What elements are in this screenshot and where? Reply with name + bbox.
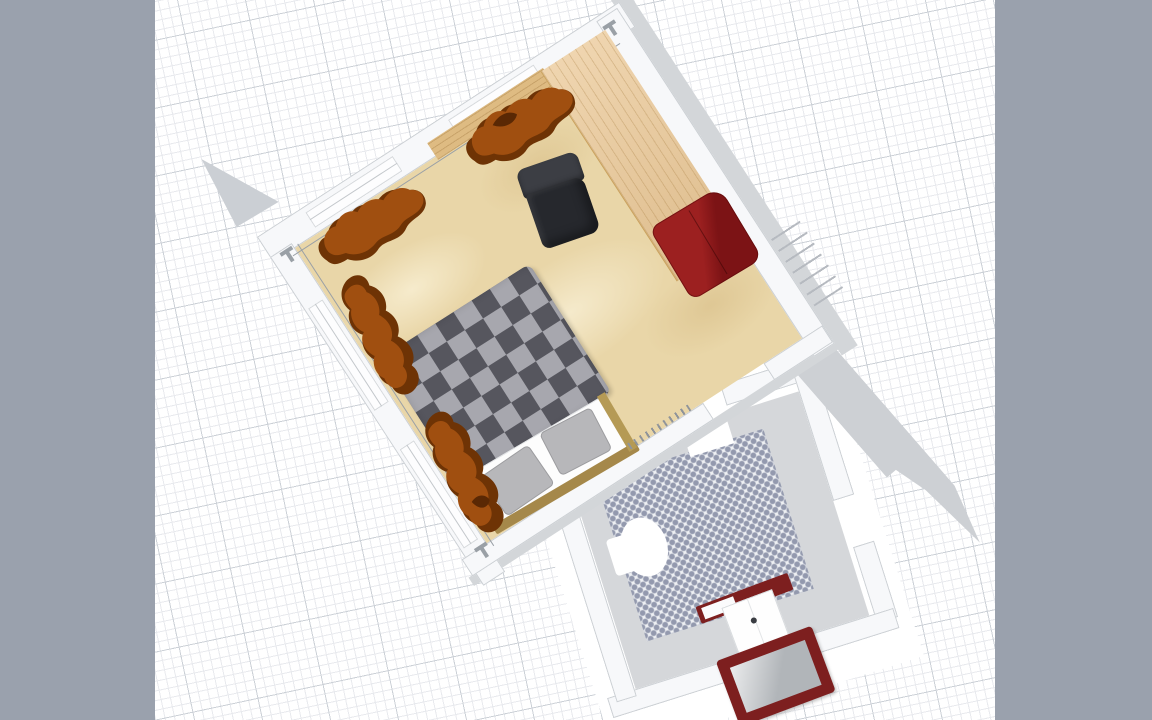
render-canvas[interactable] (155, 0, 995, 720)
scene-layer (155, 0, 995, 720)
vanity-cabinet-top (730, 640, 822, 713)
floorplan-3d-viewport[interactable] (0, 0, 1152, 720)
right-panel (995, 0, 1152, 720)
left-panel (0, 0, 155, 720)
